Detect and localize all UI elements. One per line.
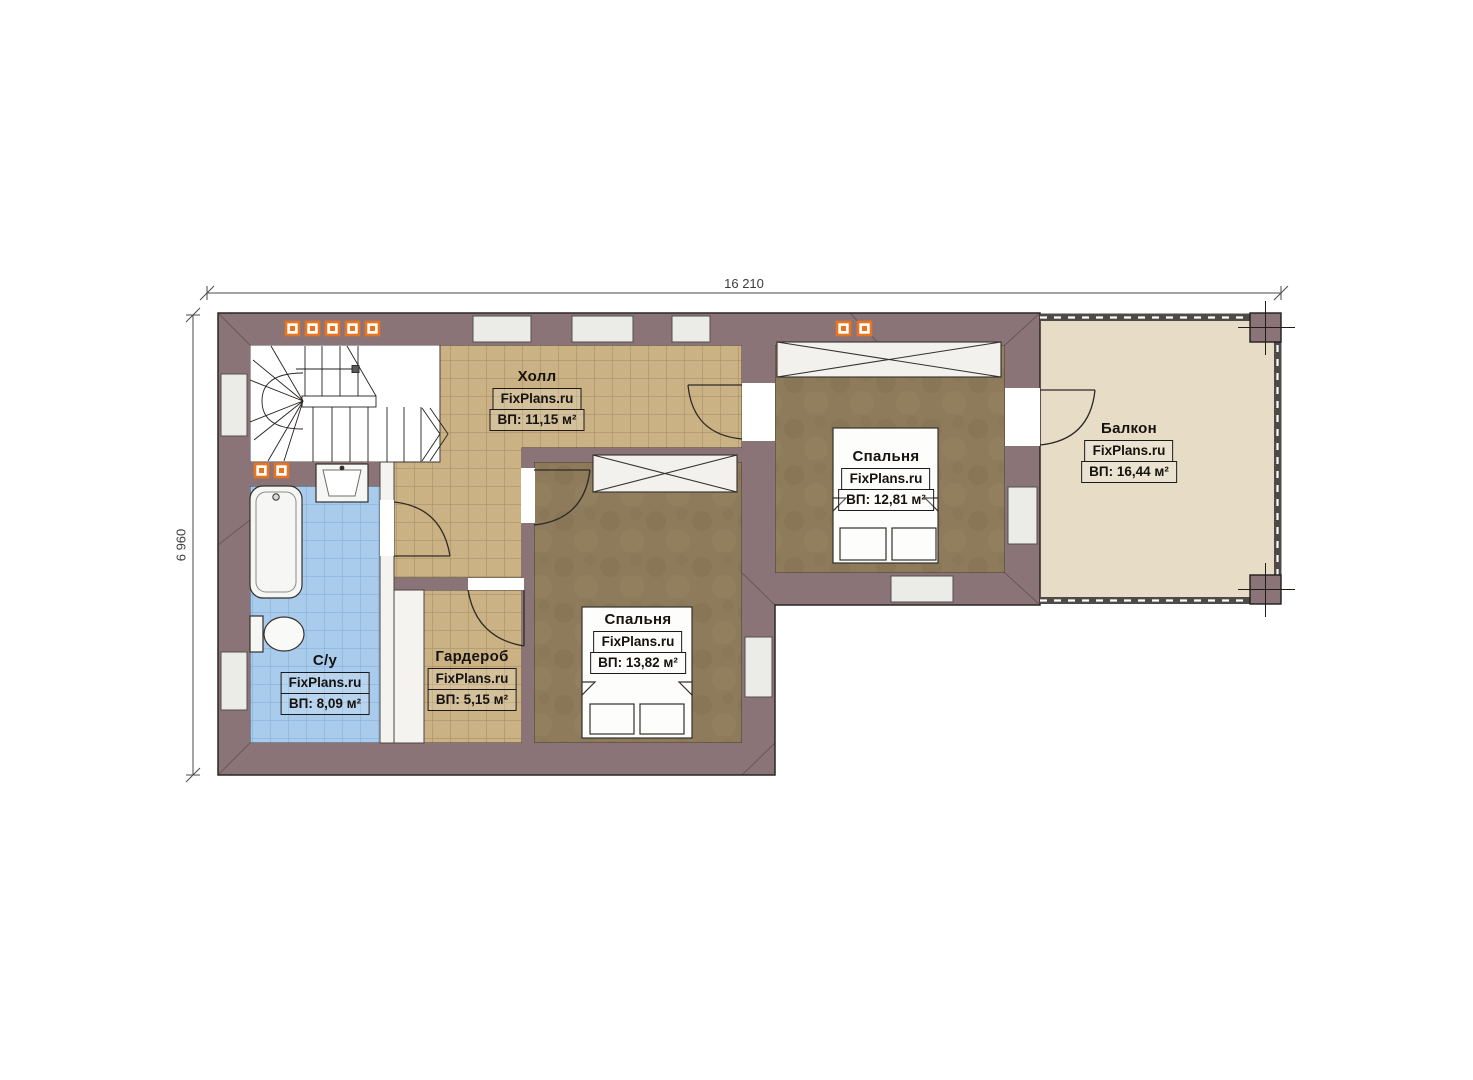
room-area: ВП: 11,15 м² xyxy=(490,409,585,431)
room-name: Спальня xyxy=(605,611,672,628)
watermark: FixPlans.ru xyxy=(493,388,582,410)
window-top-1 xyxy=(473,316,531,342)
window-bedroom-center-side xyxy=(745,637,772,697)
window-left-1 xyxy=(221,374,247,436)
watermark: FixPlans.ru xyxy=(1085,440,1174,462)
window-top-3 xyxy=(672,316,710,342)
room-name: Балкон xyxy=(1101,420,1157,437)
floorplan-drawing xyxy=(0,0,1473,1080)
window-left-2 xyxy=(221,652,247,710)
room-area: ВП: 8,09 м² xyxy=(281,693,369,715)
watermark: FixPlans.ru xyxy=(428,668,517,690)
watermark: FixPlans.ru xyxy=(842,468,931,490)
room-area: ВП: 12,81 м² xyxy=(838,489,934,511)
room-area: ВП: 13,82 м² xyxy=(590,652,686,674)
toilet-tank xyxy=(250,616,263,652)
floorplan-page: Холл FixPlans.ru ВП: 11,15 м² Спальня Fi… xyxy=(0,0,1473,1080)
room-area: ВП: 16,44 м² xyxy=(1081,461,1177,483)
label-bedroom-center: Спальня FixPlans.ru ВП: 13,82 м² xyxy=(590,611,686,674)
window-bedroom-right-bottom xyxy=(891,576,953,602)
watermark: FixPlans.ru xyxy=(594,631,683,653)
toilet-bowl xyxy=(264,617,304,651)
label-wardrobe: Гардероб FixPlans.ru ВП: 5,15 м² xyxy=(428,648,517,711)
label-balcony: Балкон FixPlans.ru ВП: 16,44 м² xyxy=(1081,420,1177,483)
label-hall: Холл FixPlans.ru ВП: 11,15 м² xyxy=(490,368,585,431)
window-bedroom-right-side xyxy=(1008,487,1037,544)
room-name: С/у xyxy=(313,652,337,669)
room-name: Спальня xyxy=(853,448,920,465)
watermark: FixPlans.ru xyxy=(281,672,370,694)
room-area: ВП: 5,15 м² xyxy=(428,689,516,711)
label-bedroom-right: Спальня FixPlans.ru ВП: 12,81 м² xyxy=(838,448,934,511)
label-bathroom: С/у FixPlans.ru ВП: 8,09 м² xyxy=(281,652,370,715)
dimension-width: 16 210 xyxy=(724,276,764,291)
window-top-2 xyxy=(572,316,633,342)
room-name: Гардероб xyxy=(435,648,508,665)
bathtub xyxy=(250,486,302,598)
room-name: Холл xyxy=(518,368,557,385)
dimension-height: 6 960 xyxy=(174,529,189,562)
